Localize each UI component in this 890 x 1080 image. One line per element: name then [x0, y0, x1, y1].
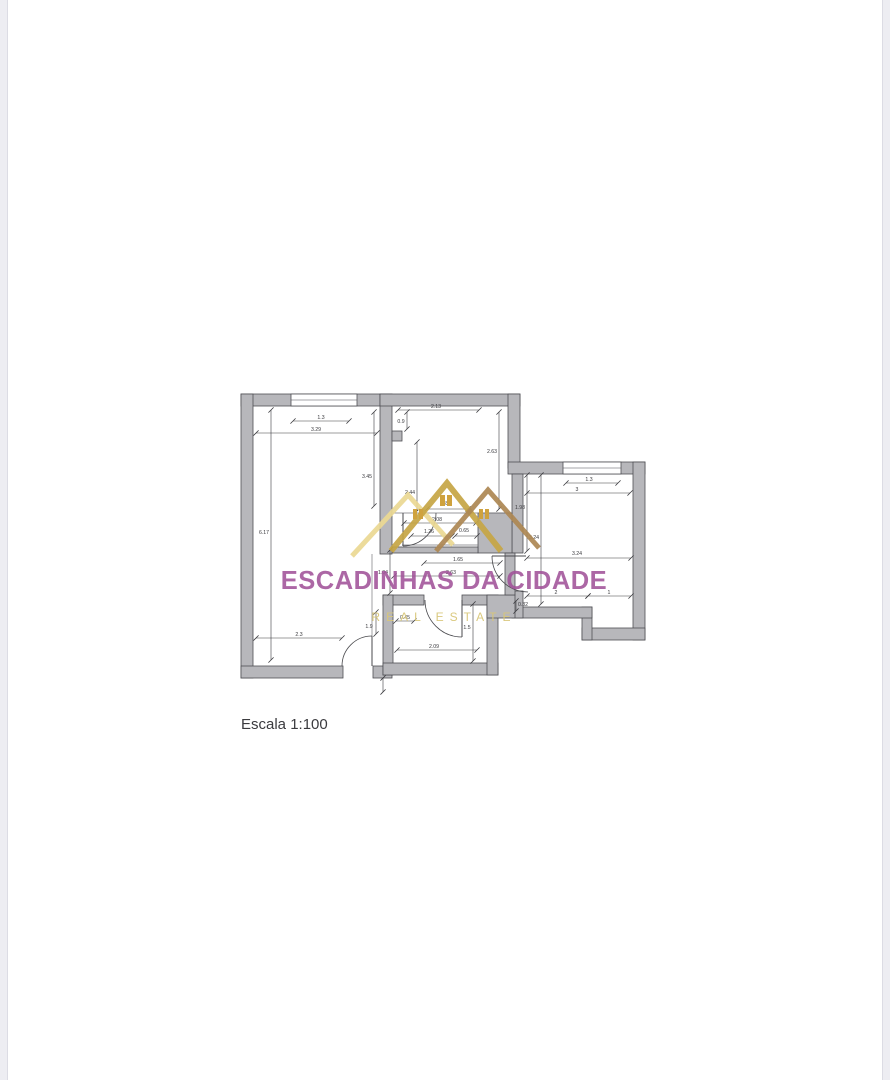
wall [380, 394, 392, 554]
wall [508, 394, 520, 468]
scale-label: Escala 1:100 [241, 716, 328, 733]
page: 1.33.296.173.452.31.92.130.92.442.630.87… [0, 0, 890, 1080]
dimension-label: 6.17 [259, 530, 269, 536]
wall [512, 474, 523, 553]
dimension-label: 3.29 [311, 427, 321, 433]
dimension-label: 2.09 [429, 644, 439, 650]
dimension-label: 1.5 [463, 625, 470, 631]
dimension-label: 2.63 [487, 449, 497, 455]
wall [241, 394, 253, 678]
dimension-label: 0.32 [518, 602, 528, 608]
logo-window [479, 509, 483, 519]
logo-window [419, 509, 423, 519]
dimension-label: 3.45 [362, 474, 372, 480]
dimension-label: 2.3 [295, 632, 302, 638]
watermark-title: ESCADINHAS DA CIDADE [281, 567, 607, 595]
wall [512, 607, 592, 618]
dimension-label: 3 [576, 487, 579, 493]
dimension-label: 1.65 [453, 557, 463, 563]
dimension-label: 1.26 [424, 529, 434, 535]
dimension-label: 1.3 [317, 415, 324, 421]
dimension-label: 1.3 [585, 477, 592, 483]
logo-window [413, 509, 417, 519]
door-swing-arc [342, 636, 372, 666]
dimension-label: 2.13 [431, 404, 441, 410]
logo-window [485, 509, 489, 519]
wall [392, 431, 402, 441]
wall [241, 666, 343, 678]
dimension-label: 3.24 [572, 551, 582, 557]
dimension-label: 1 [608, 590, 611, 596]
logo-window [440, 495, 445, 506]
wall [633, 462, 645, 640]
dimension-label: 0.65 [459, 528, 469, 534]
wall [380, 394, 520, 406]
logo-window [447, 495, 452, 506]
dimension-label: 1.98 [515, 505, 525, 511]
dimension-label: 0.9 [397, 419, 404, 425]
dimension-label: 1.9 [365, 624, 372, 630]
watermark-subtitle: REAL ESTATE [371, 610, 516, 624]
floor-plan: 1.33.296.173.452.31.92.130.92.442.630.87… [0, 0, 890, 1080]
wall [383, 663, 498, 675]
